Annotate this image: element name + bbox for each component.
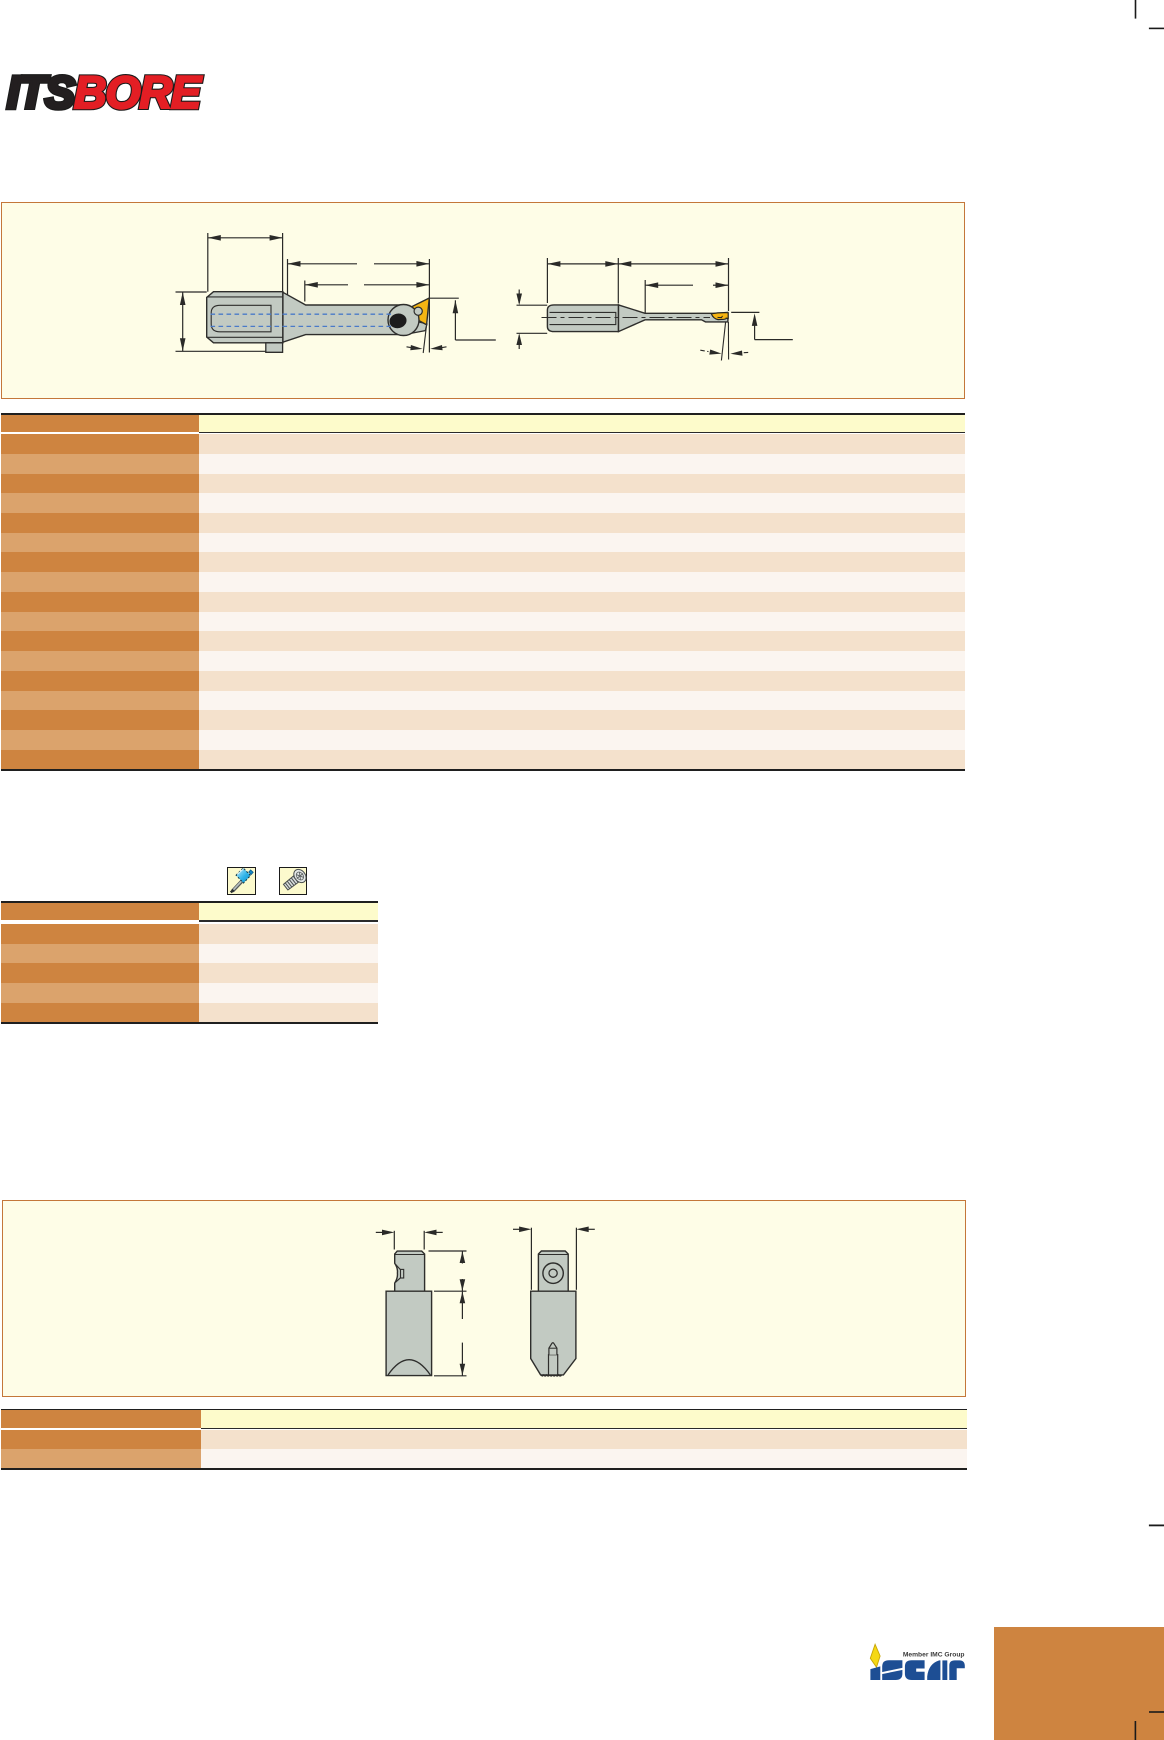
svg-text:Member IMC Group: Member IMC Group	[903, 1652, 965, 1659]
